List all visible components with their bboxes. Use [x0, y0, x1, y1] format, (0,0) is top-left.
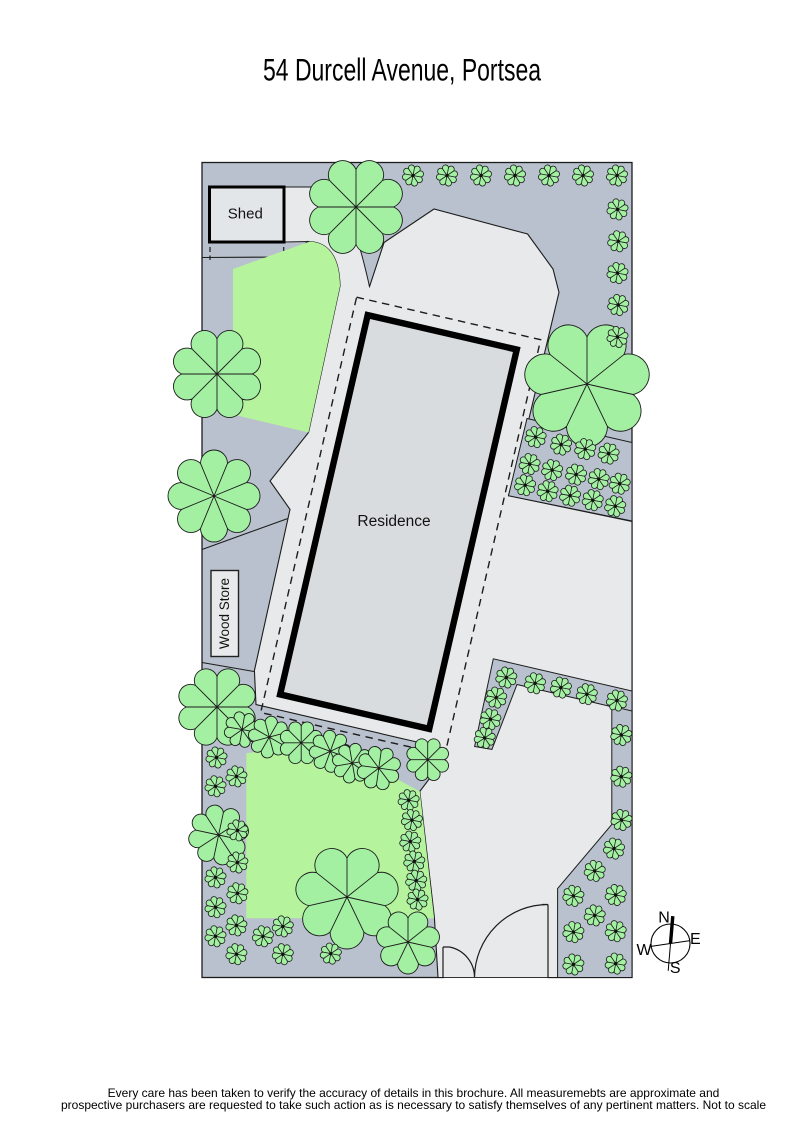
svg-text:S: S	[670, 960, 681, 977]
svg-text:Shed: Shed	[228, 206, 263, 223]
svg-text:N: N	[658, 910, 670, 927]
svg-text:Residence: Residence	[357, 513, 430, 530]
svg-text:E: E	[690, 931, 701, 948]
svg-text:W: W	[636, 942, 652, 959]
svg-text:Wood Store: Wood Store	[217, 578, 232, 649]
